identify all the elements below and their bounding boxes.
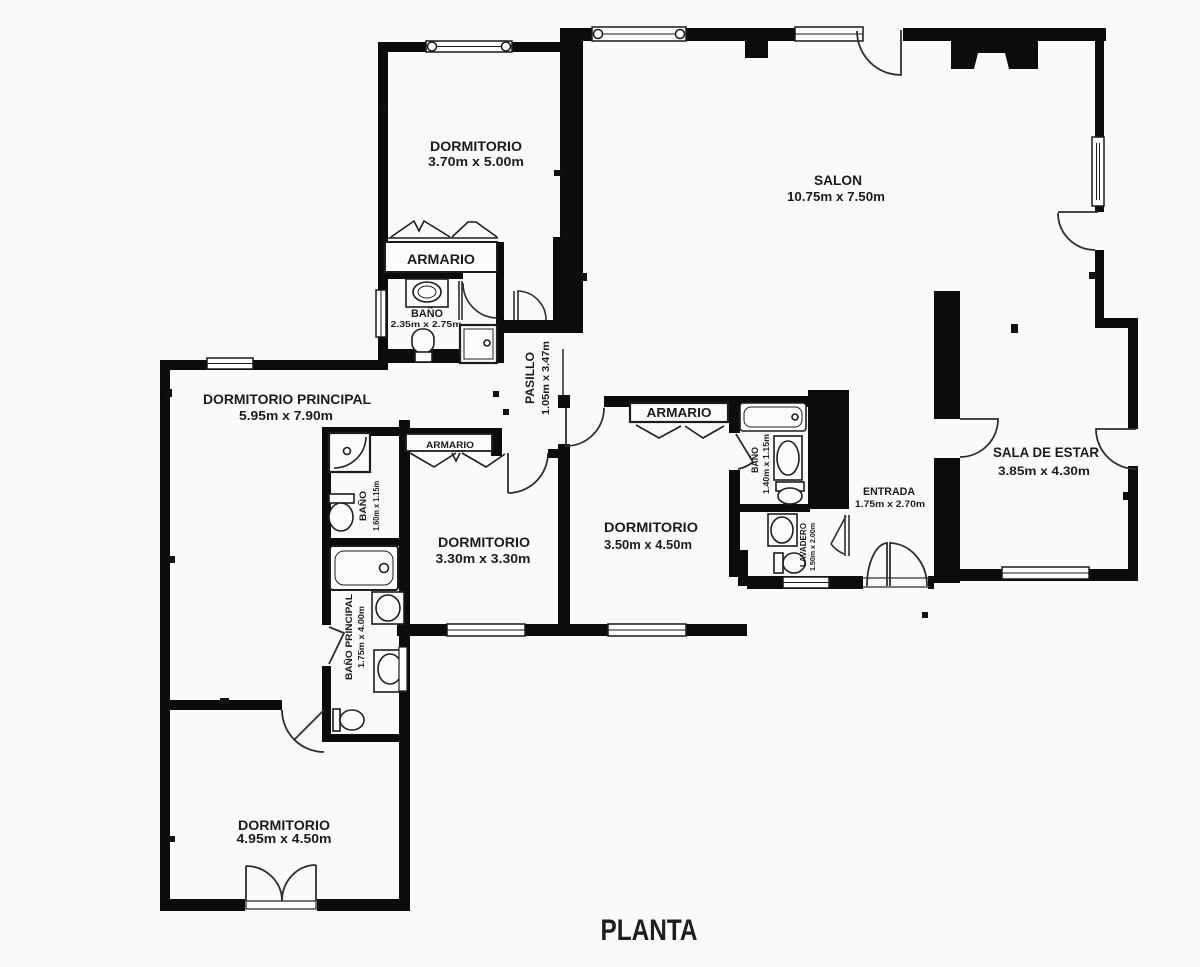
svg-text:BAÑO PRINCIPAL: BAÑO PRINCIPAL [344, 593, 354, 680]
svg-text:1.75m x 2.70m: 1.75m x 2.70m [855, 499, 925, 509]
svg-text:PASILLO: PASILLO [525, 352, 537, 404]
svg-text:BAÑO: BAÑO [411, 307, 443, 320]
svg-text:ARMARIO: ARMARIO [426, 440, 474, 451]
svg-text:3.70m x 5.00m: 3.70m x 5.00m [428, 155, 524, 169]
svg-text:1.75m x 4.00m: 1.75m x 4.00m [357, 606, 366, 668]
svg-text:2.35m x 2.75m: 2.35m x 2.75m [391, 320, 462, 329]
svg-text:DORMITORIO PRINCIPAL: DORMITORIO PRINCIPAL [203, 391, 371, 407]
svg-text:1.05m x 3.47m: 1.05m x 3.47m [540, 341, 552, 415]
svg-text:ARMARIO: ARMARIO [407, 252, 475, 267]
svg-text:3.30m x 3.30m: 3.30m x 3.30m [436, 552, 531, 566]
svg-text:SALON: SALON [814, 172, 862, 188]
svg-text:1.60m x 1.15m: 1.60m x 1.15m [372, 481, 381, 531]
svg-text:ENTRADA: ENTRADA [863, 486, 915, 498]
svg-text:10.75m x 7.50m: 10.75m x 7.50m [787, 190, 885, 204]
svg-text:LAVADERO: LAVADERO [799, 523, 808, 567]
svg-text:DORMITORIO: DORMITORIO [430, 138, 522, 154]
svg-text:1.50m x 2.00m: 1.50m x 2.00m [808, 523, 817, 571]
svg-text:PLANTA: PLANTA [601, 914, 698, 947]
svg-text:DORMITORIO: DORMITORIO [604, 519, 698, 535]
svg-text:BAÑO: BAÑO [750, 447, 760, 473]
svg-text:ARMARIO: ARMARIO [647, 406, 712, 420]
svg-text:3.85m x 4.30m: 3.85m x 4.30m [998, 464, 1090, 478]
svg-text:BAÑO: BAÑO [358, 491, 368, 521]
svg-text:4.95m x 4.50m: 4.95m x 4.50m [237, 832, 332, 846]
svg-text:1.40m x 1.15m: 1.40m x 1.15m [762, 434, 771, 494]
svg-text:DORMITORIO: DORMITORIO [438, 534, 530, 550]
svg-text:3.50m x 4.50m: 3.50m x 4.50m [604, 538, 692, 552]
svg-text:DORMITORIO: DORMITORIO [238, 817, 330, 833]
svg-text:5.95m x 7.90m: 5.95m x 7.90m [239, 409, 333, 423]
svg-text:SALA DE ESTAR: SALA DE ESTAR [993, 444, 1099, 460]
